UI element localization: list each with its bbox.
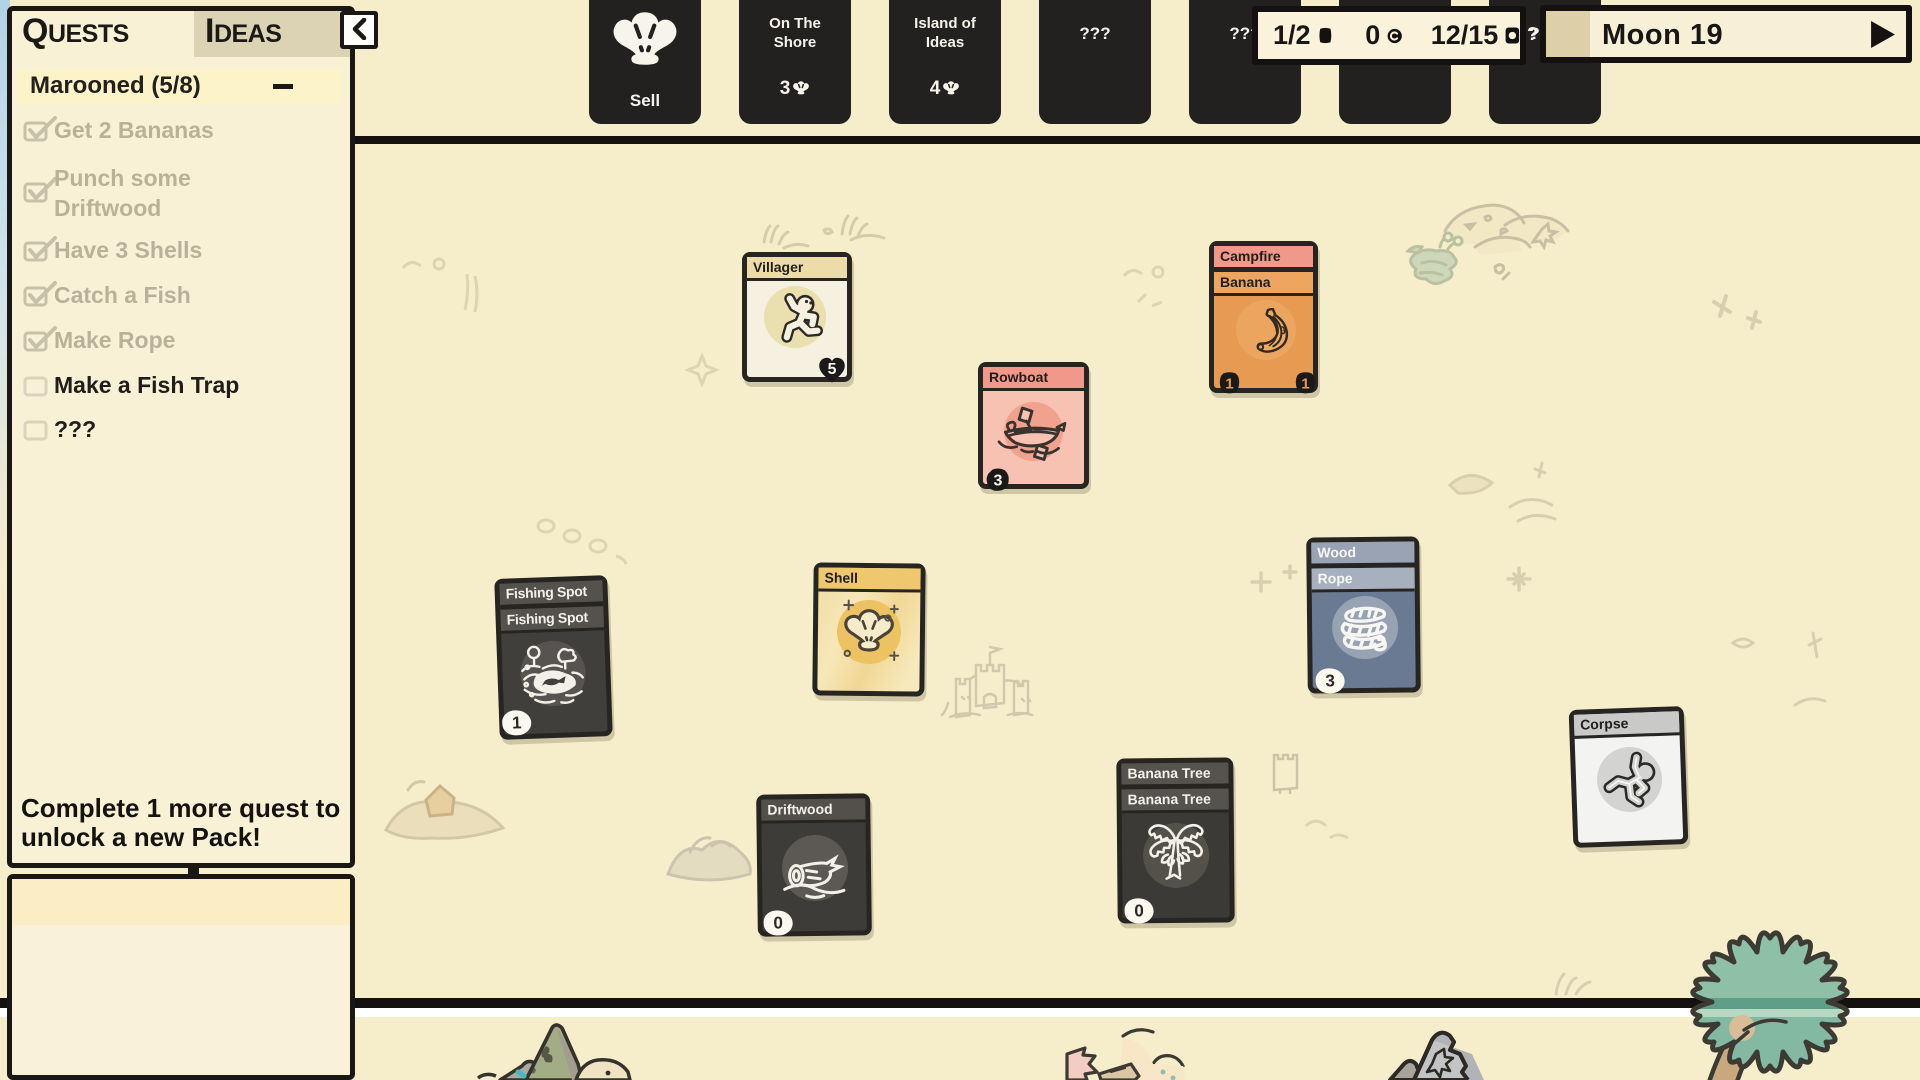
svg-text:5: 5 bbox=[828, 361, 837, 378]
svg-text:3: 3 bbox=[994, 472, 1003, 490]
svg-text:1: 1 bbox=[1301, 376, 1309, 393]
svg-text:1: 1 bbox=[1225, 376, 1233, 393]
